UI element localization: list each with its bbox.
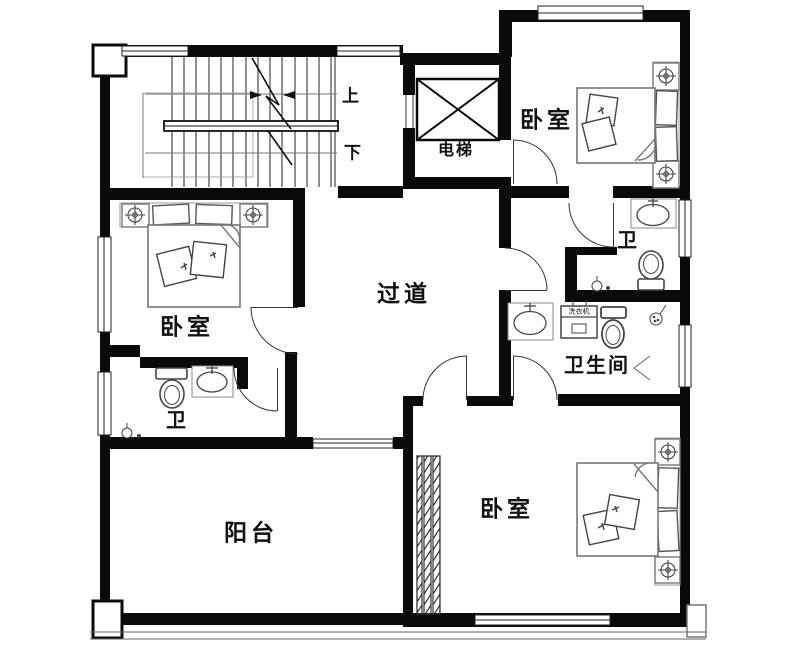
balcony-sliding-opening [313,439,393,448]
room-label-toilet-top-right: 卫 [617,231,637,251]
shower-icon [650,305,666,325]
room-label-bedroom-top-right: 卧室 [520,109,574,132]
floor-plan-linework [0,0,789,647]
room-label-corridor: 过道 [377,283,431,306]
toilet-icon [601,307,626,348]
door-vestibule [505,248,547,291]
room-label-bedroom-left: 卧室 [160,316,214,339]
floor-plan: 卧室 卧室 卧室 过道 卫生间 卫 卫 阳台 电梯 上 下 洗衣机 [0,0,789,647]
door-bathroom [513,356,557,400]
room-label-balcony: 阳台 [224,522,278,545]
cushion [582,117,616,151]
pillow [153,204,190,225]
stairwell-outline [143,93,253,177]
sink-icon [508,303,553,340]
window-stair-left [122,46,188,56]
bed-left-bedroom [120,203,268,307]
light-icon [592,276,610,291]
door-bedroom-bottom [423,356,467,400]
stairs-down-label: 下 [344,145,362,162]
pillow [655,91,677,126]
sink-icon [192,365,233,397]
elevator-door [406,95,413,128]
staircase [143,57,338,187]
room-label-toilet-left: 卫 [166,411,186,431]
bed-top-right-bedroom [577,62,679,188]
bathroom-fixtures [508,300,666,348]
washing-machine-label: 洗衣机 [569,309,590,316]
toilet-icon [638,251,664,290]
room-label-bathroom: 卫生间 [564,356,630,376]
door-bedroom-top-right [513,140,557,184]
window-bedroom-top [538,6,643,20]
elevator-label: 电梯 [438,143,474,159]
sink-icon [631,198,676,228]
stairs-up-label: 上 [342,88,360,105]
pillow [657,511,679,552]
pillow [657,468,678,509]
window-stair-right [337,46,400,56]
window-bathroom-right [679,325,691,387]
cushion [605,495,640,530]
shower-corner-mark [634,356,650,380]
window-toilet-right [679,200,691,257]
bed-bottom-bedroom [577,438,680,585]
light-icon [122,423,141,438]
door-toilet-top-right [569,203,614,247]
window-bedroom-bottom [475,615,610,625]
pillow [196,204,233,224]
window-bedroom-left [98,237,111,332]
door-bedroom-left [251,307,298,354]
elevator-shaft [406,79,499,140]
toilet-icon [156,368,187,408]
window-toilet-left [98,372,111,435]
wardrobe [417,456,440,614]
pillow [655,127,677,162]
room-label-bedroom-bottom: 卧室 [480,498,534,521]
cushion [190,241,226,277]
